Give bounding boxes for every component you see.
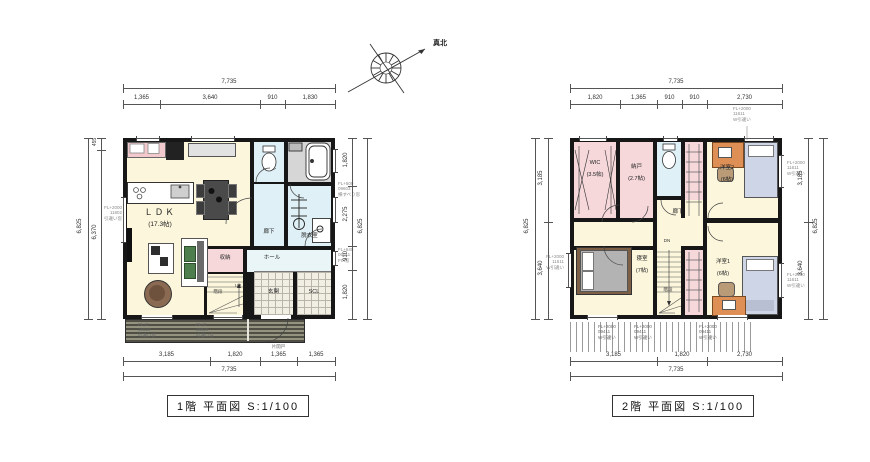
dim-value: 6,825 <box>77 206 83 246</box>
dim-value: 6,370 <box>92 212 98 252</box>
bed-foot <box>744 300 774 311</box>
dim-value: 3,185 <box>123 352 210 358</box>
dim-value: 1,820 <box>343 272 349 312</box>
label-ldk: ＬＤＫ <box>130 207 190 218</box>
dim-tick <box>531 138 540 139</box>
dim-tick <box>707 357 708 366</box>
dim-value: 7,735 <box>123 79 335 85</box>
kitchen-counter <box>127 182 194 204</box>
label-stairs-2f: 階段 <box>656 287 680 293</box>
label-toilet-1f: トイレ <box>254 166 284 172</box>
wall <box>304 182 335 186</box>
compass-icon <box>348 44 425 93</box>
wall <box>574 218 653 222</box>
dim-value: 3,640 <box>538 248 544 288</box>
dim-line <box>570 361 782 362</box>
dim-tick <box>84 319 93 320</box>
label-western2-size: (6帖) <box>710 177 744 184</box>
label-hall: ホール <box>252 255 292 262</box>
dim-value: 6,825 <box>358 206 364 246</box>
pillow <box>582 271 594 290</box>
label-entrance: 玄関 <box>254 289 293 296</box>
dim-tick <box>544 138 553 139</box>
wall <box>653 142 657 200</box>
window-spec-note: FL+2000 09411 W引違い <box>699 324 729 340</box>
dim-tick <box>210 357 211 366</box>
dim-value: 7,735 <box>570 367 782 373</box>
dim-tick <box>657 100 658 109</box>
window-spec-note: FL+0 16520 引違い窓 <box>138 322 168 338</box>
laptop <box>718 147 732 158</box>
wall <box>284 142 288 246</box>
dim-value: 6,825 <box>813 206 819 246</box>
wall <box>247 246 305 250</box>
dim-tick <box>297 357 298 366</box>
label-scl: SCL <box>297 289 331 296</box>
room-corridor-1f <box>254 184 284 246</box>
dim-tick <box>348 186 357 187</box>
room-closet-bottom <box>685 250 703 315</box>
window-spec-note: FL+2000 11611 W引違い <box>733 106 765 122</box>
floorplan-sheet: ＬＤＫ (17.3帖) トイレ 廊下 脱衣室 収納 ホール 玄関 SCL 階段 … <box>0 0 870 462</box>
dim-tick <box>123 357 124 366</box>
dim-tick <box>335 372 336 381</box>
label-wic-size: (3.5帖) <box>574 172 616 179</box>
wall <box>270 182 284 184</box>
dim-value: 455 <box>92 122 98 162</box>
wall <box>722 218 782 223</box>
label-stairs-1f: 階段 <box>206 289 230 295</box>
dim-value: 910 <box>343 236 349 276</box>
dim-tick <box>804 222 813 223</box>
kitchen-back-counter <box>127 142 166 158</box>
sofa-cushion <box>184 246 196 262</box>
dim-tick <box>782 84 783 93</box>
picture-frame <box>151 246 160 255</box>
dim-value: 2,730 <box>707 352 782 358</box>
dim-tick <box>348 270 357 271</box>
dim-tick <box>819 319 828 320</box>
wall <box>676 196 681 200</box>
label-toilet-2f: トイレ <box>657 158 681 164</box>
label-nando: 納戸 <box>620 164 653 171</box>
dim-tick <box>782 100 783 109</box>
window-spec-note: FL+2000 09411 W引違い <box>634 324 664 340</box>
dim-line <box>548 138 549 319</box>
floor2-caption: 2階 平面図 S:1/100 <box>612 395 754 417</box>
dim-line <box>352 138 353 319</box>
dim-tick <box>97 138 106 139</box>
dim-tick <box>804 138 813 139</box>
dim-value: 1,365 <box>260 352 297 358</box>
dim-tick <box>707 100 708 109</box>
dim-tick <box>123 372 124 381</box>
label-bedroom: 寝室 <box>630 256 654 263</box>
laptop <box>722 300 736 310</box>
dim-value: 910 <box>260 95 285 101</box>
label-nando-size: (2.7帖) <box>620 176 653 183</box>
dim-line <box>123 376 335 377</box>
dim-tick <box>570 372 571 381</box>
dim-line <box>570 104 782 105</box>
window <box>779 155 784 188</box>
wall <box>703 218 708 223</box>
dim-line <box>570 376 782 377</box>
window <box>333 197 338 223</box>
dim-tick <box>160 100 161 109</box>
dim-line <box>535 138 536 319</box>
room-stairs-2f <box>657 246 681 315</box>
dim-value: 7,735 <box>570 79 782 85</box>
dim-value: 2,275 <box>343 194 349 234</box>
dim-tick <box>97 319 106 320</box>
label-corridor-1f: 廊下 <box>254 229 284 236</box>
dim-value: 1,820 <box>210 352 260 358</box>
label-western1: 洋室1 <box>706 259 740 266</box>
room-toilet-2f <box>657 142 681 196</box>
label-corridor-2f: 廊下 <box>655 209 701 216</box>
dim-value: 1,820 <box>570 95 620 101</box>
dining-chair <box>228 184 237 198</box>
dim-tick <box>819 138 828 139</box>
window <box>191 136 235 141</box>
dim-line <box>101 138 102 319</box>
dim-value: 2,730 <box>707 95 782 101</box>
room-landing <box>574 222 653 246</box>
pillow <box>746 259 774 271</box>
wall <box>681 246 685 315</box>
room-bath <box>288 142 331 182</box>
dining-chair <box>228 201 237 215</box>
dim-tick <box>335 100 336 109</box>
dim-value: 1,820 <box>343 140 349 180</box>
window-spec-note: FL+2000 09411 W引違い <box>598 324 628 340</box>
wall <box>681 142 685 218</box>
label-ldk-size: (17.3帖) <box>130 221 190 229</box>
dim-tick <box>620 100 621 109</box>
dim-tick <box>348 138 357 139</box>
dim-tick <box>570 84 571 93</box>
dim-value: 7,735 <box>123 367 335 373</box>
label-dressing: 脱衣室 <box>288 233 331 240</box>
dim-tick <box>544 319 553 320</box>
dim-tick <box>260 100 261 109</box>
dim-value: 1,365 <box>297 352 335 358</box>
window <box>744 136 774 141</box>
dim-tick <box>348 246 357 247</box>
dim-tick <box>335 84 336 93</box>
window <box>663 136 678 141</box>
window <box>579 136 607 141</box>
dim-tick <box>570 100 571 109</box>
room-toilet-1f <box>254 142 284 182</box>
dim-line <box>123 361 335 362</box>
dim-tick <box>97 150 106 151</box>
dim-value: 1,365 <box>620 95 657 101</box>
dim-tick <box>531 319 540 320</box>
dim-tick <box>335 357 336 366</box>
dim-tick <box>782 372 783 381</box>
dim-tick <box>260 357 261 366</box>
dim-tick <box>682 100 683 109</box>
dim-value: 1,830 <box>285 95 335 101</box>
floor1-caption: 1階 平面図 S:1/100 <box>167 395 309 417</box>
entrance-step-line <box>254 271 331 272</box>
window <box>587 315 618 320</box>
dim-value: 1,365 <box>123 95 160 101</box>
window <box>566 253 571 288</box>
dim-value: 1,820 <box>657 352 707 358</box>
door-type-note: 片開戸 <box>260 344 297 349</box>
wall <box>323 246 335 250</box>
sofa-back <box>197 241 204 282</box>
dim-value: 3,185 <box>538 158 544 198</box>
dim-tick <box>363 319 372 320</box>
dim-line <box>123 88 335 89</box>
dim-value: 910 <box>657 95 682 101</box>
desk-chair <box>718 282 735 297</box>
dim-tick <box>348 319 357 320</box>
label-closet-1f: 収納 <box>207 255 243 262</box>
wall <box>703 142 707 315</box>
dim-value: 3,640 <box>798 248 804 288</box>
dim-tick <box>123 84 124 93</box>
dim-line <box>570 88 782 89</box>
wall <box>685 246 703 250</box>
dim-value: 3,185 <box>570 352 657 358</box>
sofa-cushion <box>184 263 196 279</box>
window <box>136 136 160 141</box>
window <box>717 315 748 320</box>
dim-line <box>123 104 335 105</box>
dining-table <box>203 180 229 220</box>
north-label: 真北 <box>428 40 452 49</box>
dim-tick <box>123 100 124 109</box>
label-dn: DN <box>655 238 679 244</box>
window <box>333 149 338 173</box>
picture-frame <box>160 257 168 266</box>
dim-tick <box>782 357 783 366</box>
pillow <box>582 252 594 271</box>
wall <box>207 272 243 274</box>
window <box>779 263 784 298</box>
pillow <box>748 145 774 157</box>
dim-tick <box>804 319 813 320</box>
wall <box>204 246 247 249</box>
dim-tick <box>570 357 571 366</box>
lounge-chair-seat <box>149 285 165 301</box>
room-wic <box>574 142 616 218</box>
dim-value: 6,825 <box>524 206 530 246</box>
dim-line <box>808 138 809 319</box>
dim-line <box>88 138 89 319</box>
dim-value: 3,640 <box>160 95 260 101</box>
dim-value: 910 <box>682 95 707 101</box>
refrigerator <box>166 142 184 160</box>
dim-value: 3,185 <box>798 158 804 198</box>
label-wic: WIC <box>574 160 616 167</box>
dim-tick <box>657 357 658 366</box>
label-bedroom-size: (7帖) <box>630 268 654 275</box>
label-up: UP <box>228 283 248 289</box>
window-spec-note: FL+0 16520 引違い窓 <box>196 322 226 338</box>
tv <box>127 228 132 262</box>
dining-chair <box>196 201 205 215</box>
wall <box>657 196 661 200</box>
dim-tick <box>544 222 553 223</box>
label-western2: 洋室2 <box>710 165 744 172</box>
dining-chair <box>196 184 205 198</box>
cupboard <box>188 143 236 157</box>
dim-line <box>823 138 824 319</box>
dim-line <box>367 138 368 319</box>
dim-tick <box>285 100 286 109</box>
dim-tick <box>363 138 372 139</box>
label-western1-size: (6帖) <box>706 271 740 278</box>
deck-divider <box>247 319 249 341</box>
